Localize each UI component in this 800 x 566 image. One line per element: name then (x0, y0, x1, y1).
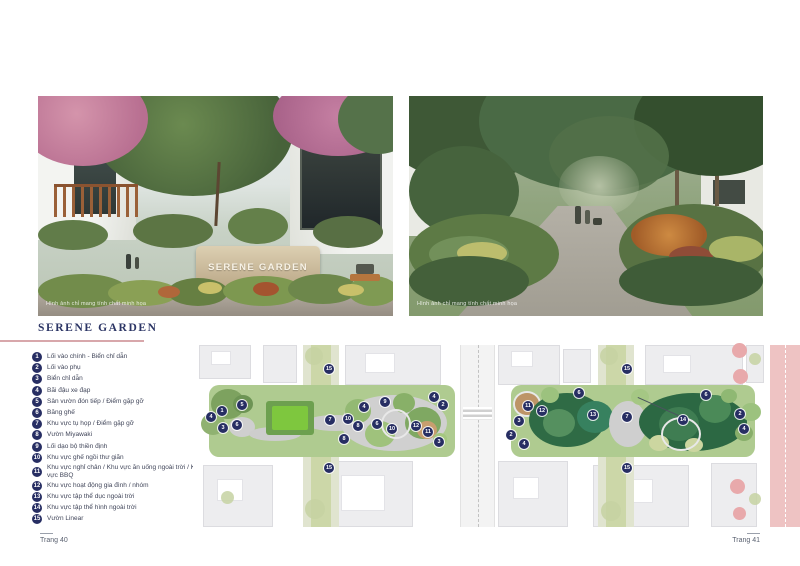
title-underline (0, 340, 144, 342)
legend-number-badge: 10 (32, 453, 42, 463)
pergola (54, 184, 138, 217)
person-silhouette (356, 264, 374, 274)
stroller (593, 218, 602, 225)
plan-marker-3: 3 (514, 416, 524, 426)
legend-label: Vườn Miyawaki (47, 431, 92, 439)
flower-accent (198, 282, 222, 294)
legend-label: Khu vực ghế ngồi thư giãn (47, 454, 124, 462)
hedge (313, 216, 383, 248)
plan-marker-2: 2 (735, 409, 745, 419)
plan-marker-7: 7 (325, 415, 335, 425)
legend-item: 1Lối vào chính - Biển chỉ dẫn (32, 352, 204, 362)
sign-text: SERENE GARDEN (208, 262, 308, 273)
hedge (133, 214, 213, 248)
plan-marker-15: 15 (324, 364, 334, 374)
section-title: SERENE GARDEN (38, 322, 158, 334)
legend-item: 15Vườn Linear (32, 514, 204, 524)
plan-marker-7: 7 (622, 412, 632, 422)
legend-label: Khu vực tập thể dục ngoài trời (47, 493, 134, 501)
planting-bed (409, 256, 529, 306)
legend-item: 2Lối vào phụ (32, 363, 204, 373)
plan-marker-6: 6 (574, 388, 584, 398)
legend-item: 4Bãi đậu xe đạp (32, 386, 204, 396)
flower-accent (253, 282, 279, 296)
plan-marker-4: 4 (359, 402, 369, 412)
plan-marker-9: 9 (380, 397, 390, 407)
plan-marker-8: 8 (339, 434, 349, 444)
legend-list: 1Lối vào chính - Biển chỉ dẫn2Lối vào ph… (32, 352, 204, 525)
plan-marker-11: 11 (423, 427, 433, 437)
plan-marker-8: 8 (353, 421, 363, 431)
legend-label: Khu vực hoạt động gia đình / nhóm (47, 482, 149, 490)
render-photo-right: Hình ảnh chỉ mang tính chất minh họa (409, 96, 763, 316)
legend-number-badge: 1 (32, 352, 42, 362)
legend-item: 8Vườn Miyawaki (32, 430, 204, 440)
plan-marker-15: 15 (622, 364, 632, 374)
legend-label: Lối dạo bộ thiền định (47, 443, 107, 451)
page-number-right: Trang 41 (732, 537, 760, 544)
plan-marker-6: 6 (232, 420, 242, 430)
photo-caption: Hình ảnh chỉ mang tính chất minh họa (417, 301, 517, 307)
siteplan: 1551463710498610812113241515111261332471… (193, 345, 800, 527)
legend-item: 11Khu vực nghỉ chân / Khu vực ăn uống ng… (32, 464, 204, 480)
legend-number-badge: 13 (32, 492, 42, 502)
plan-marker-3: 3 (434, 437, 444, 447)
plan-marker-10: 10 (343, 414, 353, 424)
legend-label: Sân vườn đón tiếp / Điểm gặp gỡ (47, 398, 144, 406)
legend-label: Khu vực tụ họp / Điểm gặp gỡ (47, 420, 134, 428)
legend-number-badge: 4 (32, 386, 42, 396)
plan-marker-5: 5 (237, 400, 247, 410)
footer-rule (40, 533, 53, 534)
page-number-left: Trang 40 (40, 537, 68, 544)
person-silhouette (135, 257, 139, 269)
photo-caption: Hình ảnh chỉ mang tính chất minh họa (46, 301, 146, 307)
legend-number-badge: 5 (32, 397, 42, 407)
legend-label: Băng ghế (47, 409, 75, 417)
legend-item: 9Lối dạo bộ thiền định (32, 442, 204, 452)
hedge (228, 208, 288, 244)
legend-item: 3Biển chỉ dẫn (32, 374, 204, 384)
flower-accent (158, 286, 180, 298)
plan-marker-15: 15 (324, 463, 334, 473)
legend-item: 6Băng ghế (32, 408, 204, 418)
siteplan-markers: 1551463710498610812113241515111261332471… (193, 345, 800, 527)
legend-number-badge: 6 (32, 408, 42, 418)
planting-bed (619, 256, 763, 306)
legend-item: 14Khu vực tập thể hình ngoài trời (32, 503, 204, 513)
legend-label: Bãi đậu xe đạp (47, 387, 90, 395)
legend-number-badge: 9 (32, 442, 42, 452)
plan-marker-4: 4 (739, 424, 749, 434)
plan-marker-1: 1 (217, 406, 227, 416)
person-silhouette (585, 210, 590, 224)
legend-number-badge: 7 (32, 419, 42, 429)
plan-marker-4: 4 (206, 412, 216, 422)
legend-label: Vườn Linear (47, 515, 83, 523)
legend-label: Khu vực tập thể hình ngoài trời (47, 504, 137, 512)
legend-number-badge: 15 (32, 514, 42, 524)
plan-marker-13: 13 (588, 410, 598, 420)
legend-label: Lối vào chính - Biển chỉ dẫn (47, 353, 127, 361)
plan-marker-2: 2 (506, 430, 516, 440)
plan-marker-3: 3 (218, 423, 228, 433)
legend-number-badge: 11 (32, 467, 42, 477)
render-photo-left: SERENE GARDEN Hình ảnh chỉ mang tính chấ… (38, 96, 393, 316)
plan-marker-11: 11 (523, 401, 533, 411)
legend-item: 12Khu vực hoạt động gia đình / nhóm (32, 481, 204, 491)
legend-number-badge: 2 (32, 363, 42, 373)
page-footer-left: Trang 40 (40, 533, 68, 544)
legend-item: 7Khu vực tụ họp / Điểm gặp gỡ (32, 419, 204, 429)
plan-marker-12: 12 (411, 421, 421, 431)
person-silhouette (575, 206, 581, 224)
legend-item: 5Sân vườn đón tiếp / Điểm gặp gỡ (32, 397, 204, 407)
legend-label: Biển chỉ dẫn (47, 375, 83, 383)
person-silhouette (126, 254, 131, 269)
page-footer-right: Trang 41 (732, 533, 760, 544)
brochure-page: SERENE GARDEN Hình ảnh chỉ mang tính chấ… (0, 0, 800, 566)
legend-label: Lối vào phụ (47, 364, 81, 372)
plan-marker-10: 10 (387, 424, 397, 434)
legend-number-badge: 12 (32, 481, 42, 491)
footer-rule (747, 533, 760, 534)
plan-marker-6: 6 (372, 419, 382, 429)
legend-item: 13Khu vực tập thể dục ngoài trời (32, 492, 204, 502)
plan-marker-2: 2 (438, 400, 448, 410)
plan-marker-12: 12 (537, 406, 547, 416)
plan-marker-6: 6 (701, 390, 711, 400)
flower-accent (338, 284, 364, 296)
legend-number-badge: 14 (32, 503, 42, 513)
bench (350, 274, 380, 281)
plan-marker-4: 4 (519, 439, 529, 449)
plan-marker-4: 4 (429, 392, 439, 402)
plan-marker-15: 15 (622, 463, 632, 473)
hedge (38, 220, 108, 250)
legend-number-badge: 3 (32, 374, 42, 384)
legend-number-badge: 8 (32, 430, 42, 440)
plan-marker-14: 14 (678, 415, 688, 425)
legend-label: Khu vực nghỉ chân / Khu vực ăn uống ngoà… (47, 464, 204, 480)
legend-item: 10Khu vực ghế ngồi thư giãn (32, 453, 204, 463)
